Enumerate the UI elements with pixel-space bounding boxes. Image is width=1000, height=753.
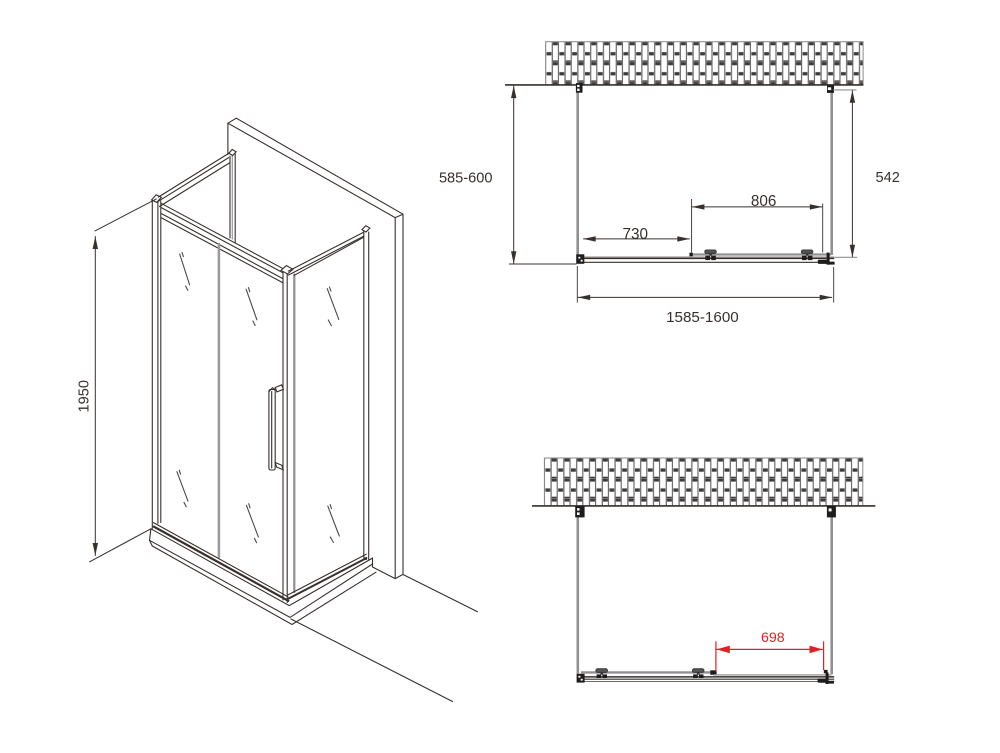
svg-text:585-600: 585-600 bbox=[439, 170, 493, 186]
svg-text:806: 806 bbox=[751, 193, 777, 210]
svg-text:1585-1600: 1585-1600 bbox=[666, 309, 739, 326]
svg-text:1950: 1950 bbox=[76, 380, 92, 412]
svg-text:698: 698 bbox=[761, 630, 785, 646]
svg-text:542: 542 bbox=[876, 170, 900, 186]
svg-text:730: 730 bbox=[623, 226, 649, 243]
